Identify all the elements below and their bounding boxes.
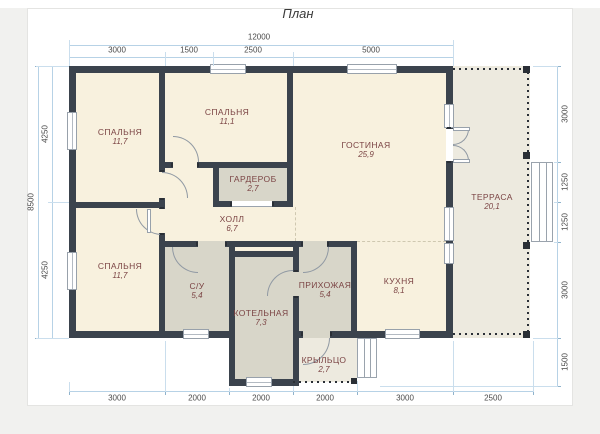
dimension-label: 3000 xyxy=(561,281,570,299)
wall-segment xyxy=(293,241,299,272)
plan-title: План xyxy=(282,6,313,21)
window xyxy=(444,207,454,241)
open-boundary-hall-living xyxy=(295,207,296,241)
page-margin-right xyxy=(573,8,600,405)
open-boundary-living-kitchen xyxy=(357,241,446,242)
label-hall: ХОЛЛ6,7 xyxy=(220,214,245,234)
wall-segment xyxy=(229,251,299,257)
label-porch: КРЫЛЬЦО2,7 xyxy=(302,355,347,375)
window xyxy=(246,377,272,387)
dimension-label: 2000 xyxy=(316,394,334,403)
terrace-post xyxy=(523,331,530,338)
label-bathroom: С/У5,4 xyxy=(189,281,204,301)
page-margin-bottom xyxy=(0,405,600,434)
terrace-edge xyxy=(527,66,529,338)
dimension-label: 3000 xyxy=(108,394,126,403)
dimension-label: 8500 xyxy=(27,193,36,211)
dimension-line xyxy=(69,57,453,58)
page-margin-left xyxy=(0,8,27,405)
floor-plan-page: План xyxy=(0,0,600,434)
wall-segment xyxy=(69,202,165,208)
door-leaf xyxy=(147,209,151,233)
window xyxy=(67,252,77,290)
dimension-label: 1500 xyxy=(561,353,570,371)
window xyxy=(385,329,420,339)
wall-segment xyxy=(159,66,165,172)
terrace-post xyxy=(523,66,530,73)
window xyxy=(347,64,397,74)
dimension-label: 3000 xyxy=(108,46,126,55)
dimension-label: 2000 xyxy=(188,394,206,403)
dimension-label: 2000 xyxy=(252,394,270,403)
wall-segment xyxy=(293,296,299,386)
label-bedroom-bottom-left: СПАЛЬНЯ11,7 xyxy=(98,261,142,281)
wall-segment xyxy=(197,162,293,168)
dimension-label: 2500 xyxy=(244,46,262,55)
terrace-edge xyxy=(453,333,527,335)
label-entrance-hall: ПРИХОЖАЯ5,4 xyxy=(299,280,352,300)
wall-segment xyxy=(287,66,293,207)
door-gap xyxy=(446,129,453,161)
dimension-label: 4250 xyxy=(41,261,50,279)
dimension-label: 3000 xyxy=(396,394,414,403)
dimension-label: 2500 xyxy=(484,394,502,403)
porch-edge xyxy=(293,381,357,383)
dimension-label: 4250 xyxy=(41,125,50,143)
label-bedroom-top-middle: СПАЛЬНЯ11,1 xyxy=(205,107,249,127)
door-leaf xyxy=(453,159,470,163)
terrace-edge xyxy=(453,68,527,70)
terrace-post xyxy=(523,152,530,159)
label-wardrobe: ГАРДЕРОБ2,7 xyxy=(229,174,276,194)
door-leaf xyxy=(453,127,470,131)
dimension-label: 3000 xyxy=(561,105,570,123)
dimension-line xyxy=(69,391,533,392)
wardrobe-opening xyxy=(232,201,272,207)
window xyxy=(444,104,454,128)
label-living-room: ГОСТИНАЯ25,9 xyxy=(341,140,390,160)
window xyxy=(444,243,454,264)
window xyxy=(67,112,77,150)
label-kitchen: КУХНЯ8,1 xyxy=(384,276,414,296)
dimension-label: 1250 xyxy=(561,173,570,191)
label-terrace: ТЕРРАСА20,1 xyxy=(471,192,513,212)
wall-segment xyxy=(69,331,235,338)
dimension-label: 1250 xyxy=(561,213,570,231)
dimension-label: 5000 xyxy=(362,46,380,55)
label-bedroom-top-left: СПАЛЬНЯ11,7 xyxy=(98,127,142,147)
wall-segment xyxy=(351,241,357,338)
terrace-post xyxy=(523,242,530,249)
wall-segment xyxy=(159,233,165,338)
label-boiler-room: КОТЕЛЬНАЯ7,3 xyxy=(233,308,288,328)
porch-steps xyxy=(357,338,377,378)
terrace-steps xyxy=(531,162,553,242)
dimension-label: 1500 xyxy=(180,46,198,55)
dimension-label: 12000 xyxy=(248,33,270,42)
window xyxy=(210,64,246,74)
dimension-line xyxy=(38,66,39,338)
wall-segment xyxy=(225,241,303,247)
window xyxy=(183,329,209,339)
